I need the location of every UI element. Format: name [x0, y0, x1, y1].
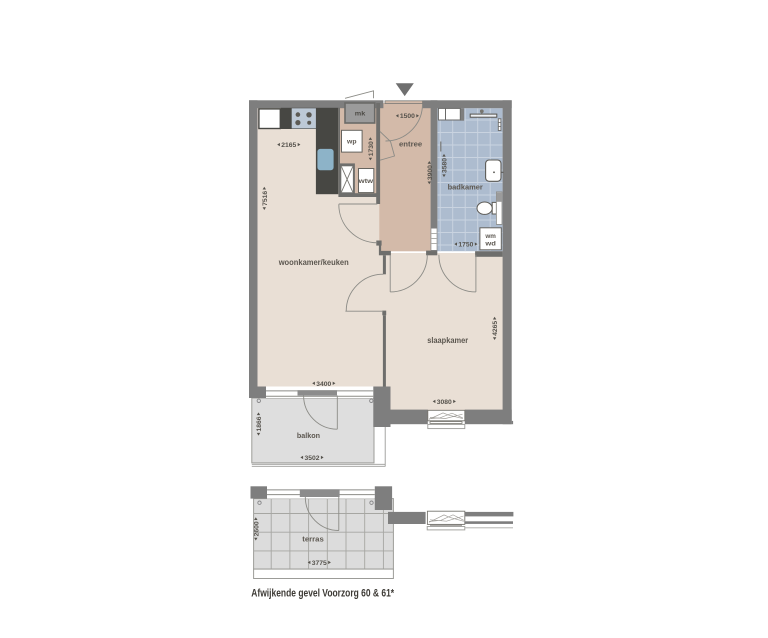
svg-text:woonkamer/keuken: woonkamer/keuken: [278, 258, 349, 267]
svg-text:1866: 1866: [256, 416, 263, 431]
svg-text:3080: 3080: [437, 399, 452, 406]
svg-text:3775: 3775: [312, 560, 327, 567]
svg-text:3900: 3900: [427, 165, 434, 180]
svg-text:1500: 1500: [400, 113, 415, 120]
svg-text:wtw: wtw: [357, 178, 373, 185]
svg-text:1730: 1730: [368, 141, 375, 156]
svg-text:Afwijkende gevel Voorzorg 60 &: Afwijkende gevel Voorzorg 60 & 61*: [251, 587, 394, 599]
svg-text:slaapkamer: slaapkamer: [427, 336, 468, 345]
svg-text:mk: mk: [355, 111, 366, 118]
svg-text:terras: terras: [302, 535, 324, 544]
svg-text:balkon: balkon: [297, 431, 320, 440]
svg-text:entree: entree: [399, 140, 422, 149]
svg-text:wp: wp: [346, 138, 357, 145]
svg-text:3502: 3502: [305, 455, 320, 462]
svg-text:1750: 1750: [458, 242, 473, 249]
svg-text:2600: 2600: [253, 521, 260, 536]
svg-text:4265: 4265: [492, 321, 499, 336]
svg-text:badkamer: badkamer: [448, 183, 483, 192]
svg-text:wd: wd: [484, 241, 496, 248]
svg-text:3400: 3400: [316, 381, 331, 388]
svg-text:2165: 2165: [281, 142, 296, 149]
svg-text:3580: 3580: [441, 158, 448, 173]
svg-text:wm: wm: [484, 233, 496, 240]
svg-text:7516: 7516: [262, 191, 269, 206]
